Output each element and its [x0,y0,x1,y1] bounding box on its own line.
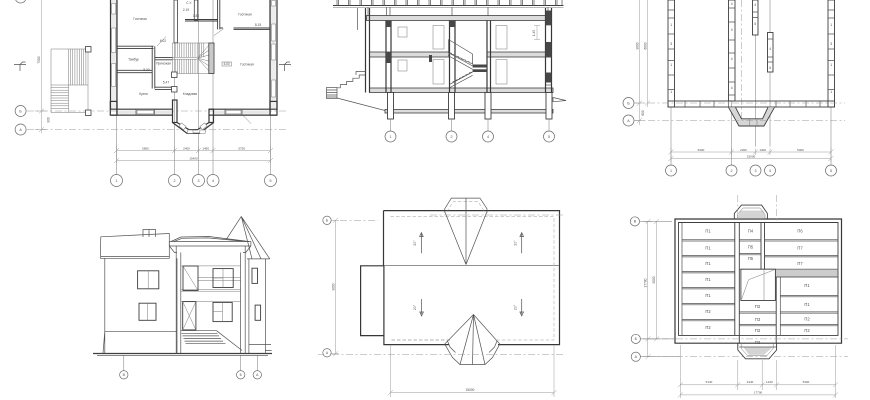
svg-text:Гостиная: Гостиная [238,13,252,17]
svg-text:17700: 17700 [754,390,763,394]
svg-text:П2: П2 [705,325,711,330]
svg-text:П1: П1 [705,293,711,298]
svg-text:4: 4 [731,86,733,90]
svg-text:2400: 2400 [183,146,190,150]
svg-text:15000: 15000 [747,154,756,158]
svg-text:4: 4 [731,57,733,61]
svg-text:С.У.: С.У. [186,1,192,5]
svg-text:2440: 2440 [747,380,754,384]
svg-text:600: 600 [641,110,645,116]
svg-text:2.19: 2.19 [183,8,189,12]
svg-text:П3: П3 [755,340,761,345]
svg-text:П7: П7 [797,261,803,266]
svg-text:П1: П1 [705,229,711,234]
svg-text:П4: П4 [748,229,754,234]
svg-text:5.00: 5.00 [224,62,230,66]
svg-text:4: 4 [731,2,733,6]
svg-text:П2: П2 [804,317,810,322]
svg-text:2: 2 [451,135,453,139]
svg-text:3: 3 [830,42,832,46]
svg-text:6: 6 [769,66,771,70]
svg-text:П5: П5 [748,245,754,250]
svg-text:1: 1 [830,90,832,94]
svg-text:5: 5 [270,179,272,183]
svg-text:17700: 17700 [643,278,647,287]
svg-text:1: 1 [116,179,118,183]
svg-text:П1: П1 [804,302,810,307]
svg-text:5300: 5300 [803,380,810,384]
svg-text:1: 1 [670,63,672,67]
svg-text:20°: 20° [513,304,517,310]
svg-text:2: 2 [731,169,733,173]
svg-text:1440: 1440 [766,380,773,384]
svg-text:П6: П6 [797,229,803,234]
svg-text:6.02: 6.02 [160,39,166,43]
svg-text:П2: П2 [804,328,810,333]
svg-text:1: 1 [670,23,672,27]
svg-text:П1: П1 [705,261,711,266]
svg-text:П1: П1 [804,283,810,288]
svg-text:4: 4 [754,3,756,7]
svg-text:4: 4 [212,179,214,183]
svg-text:Кухня: Кухня [139,92,148,96]
svg-text:П2: П2 [705,309,711,314]
svg-text:1450: 1450 [202,146,209,150]
svg-text:1: 1 [670,169,672,173]
svg-text:5400: 5400 [698,148,705,152]
svg-text:15400: 15400 [189,156,198,160]
svg-text:4: 4 [769,47,771,51]
svg-text:3: 3 [755,169,757,173]
svg-text:4: 4 [769,169,771,173]
svg-text:Гостиная: Гостиная [133,17,147,21]
svg-text:8.15: 8.15 [255,23,261,27]
svg-text:5140: 5140 [706,380,713,384]
svg-text:5800: 5800 [142,146,149,150]
svg-text:Гостиная: Гостиная [240,63,254,67]
svg-text:9000: 9000 [652,276,656,283]
svg-text:20°: 20° [413,240,417,246]
svg-text:6000: 6000 [644,42,648,49]
svg-text:П1: П1 [705,277,711,282]
svg-text:5750: 5750 [238,146,245,150]
svg-text:900: 900 [47,117,51,123]
svg-text:Тамбур: Тамбур [128,58,139,62]
svg-text:П5: П5 [748,256,754,261]
svg-text:П1: П1 [705,246,711,251]
svg-text:5: 5 [830,169,832,173]
svg-text:1: 1 [830,23,832,27]
svg-text:Кладовая: Кладовая [183,92,198,96]
svg-text:5400: 5400 [797,148,804,152]
svg-text:1: 1 [390,135,392,139]
svg-text:7500: 7500 [37,56,41,63]
svg-text:1.45: 1.45 [532,30,536,36]
svg-text:1.80: 1.80 [193,14,199,18]
svg-text:9000: 9000 [331,283,335,290]
svg-text:4: 4 [487,135,489,139]
svg-text:1: 1 [670,90,672,94]
svg-text:5: 5 [548,135,550,139]
svg-text:П3: П3 [755,328,761,333]
svg-text:П3: П3 [755,304,761,309]
svg-text:1300: 1300 [759,148,766,152]
svg-text:3: 3 [670,42,672,46]
svg-text:15000: 15000 [466,388,475,392]
svg-text:2: 2 [174,179,176,183]
svg-text:5.47: 5.47 [163,81,169,85]
svg-text:1: 1 [830,63,832,67]
svg-text:2200: 2200 [740,148,747,152]
svg-text:3: 3 [198,179,200,183]
svg-text:5.33: 5.33 [143,68,149,72]
svg-text:П7: П7 [797,246,803,251]
svg-text:П3: П3 [755,317,761,322]
svg-text:5: 5 [754,22,756,26]
svg-text:20°: 20° [413,304,417,310]
svg-text:9000: 9000 [636,42,640,49]
svg-text:20°: 20° [513,240,517,246]
svg-text:Прихожая: Прихожая [156,62,171,66]
svg-text:4: 4 [731,28,733,32]
